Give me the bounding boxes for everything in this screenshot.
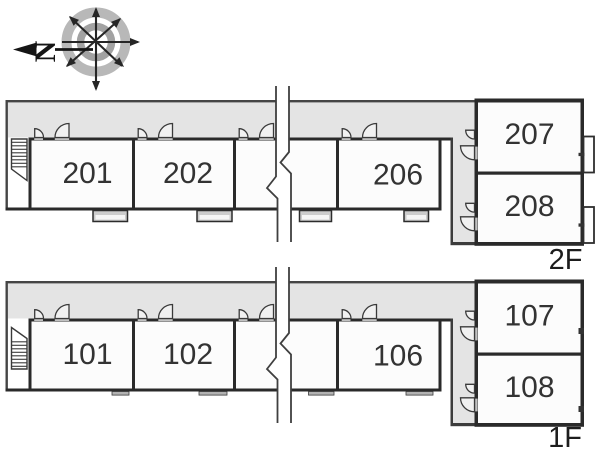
- svg-text:106: 106: [373, 340, 423, 373]
- svg-text:107: 107: [504, 300, 554, 333]
- svg-text:201: 201: [62, 157, 112, 190]
- svg-text:1F: 1F: [548, 422, 582, 450]
- svg-text:208: 208: [504, 190, 554, 223]
- svg-text:102: 102: [163, 338, 213, 371]
- svg-text:N: N: [29, 40, 62, 62]
- svg-text:108: 108: [504, 371, 554, 404]
- svg-text:101: 101: [62, 338, 112, 371]
- svg-text:202: 202: [163, 157, 213, 190]
- svg-text:206: 206: [373, 159, 423, 192]
- svg-text:2F: 2F: [549, 244, 583, 276]
- svg-text:207: 207: [504, 118, 554, 151]
